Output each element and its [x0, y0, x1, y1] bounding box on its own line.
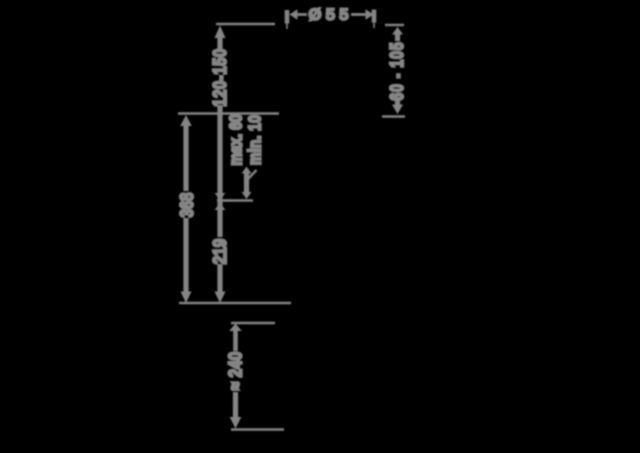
svg-text:219: 219: [209, 239, 231, 265]
svg-text:min. 10: min. 10: [246, 115, 265, 165]
svg-text:120-150: 120-150: [209, 48, 230, 107]
svg-text:60 - 105: 60 - 105: [387, 41, 407, 100]
svg-text:Ø55: Ø55: [308, 5, 352, 24]
svg-text:≈ 240: ≈ 240: [224, 352, 246, 391]
svg-text:368: 368: [177, 192, 198, 217]
svg-text:max. 60: max. 60: [226, 114, 246, 165]
